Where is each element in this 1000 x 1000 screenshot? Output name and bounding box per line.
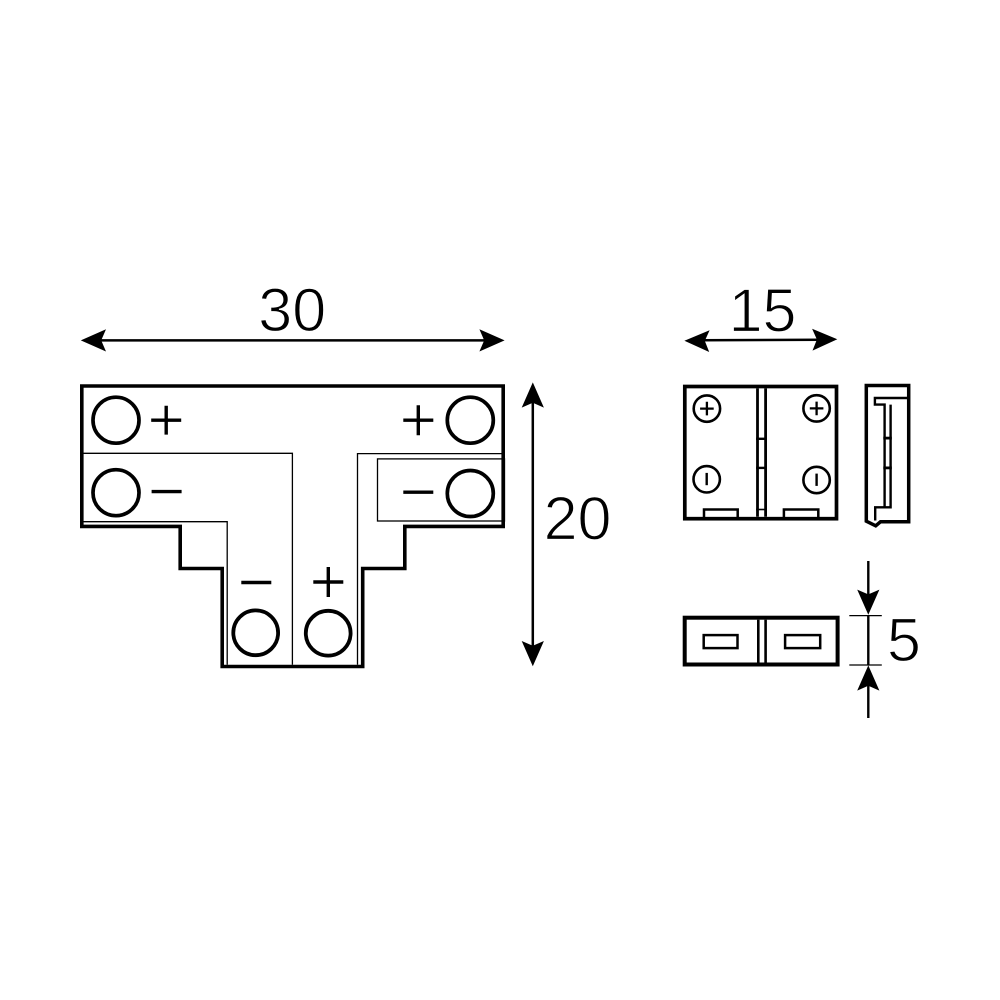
svg-text:20: 20 [544,485,612,553]
svg-text:15: 15 [729,277,797,345]
svg-text:5: 5 [887,606,921,674]
svg-text:30: 30 [258,276,326,344]
